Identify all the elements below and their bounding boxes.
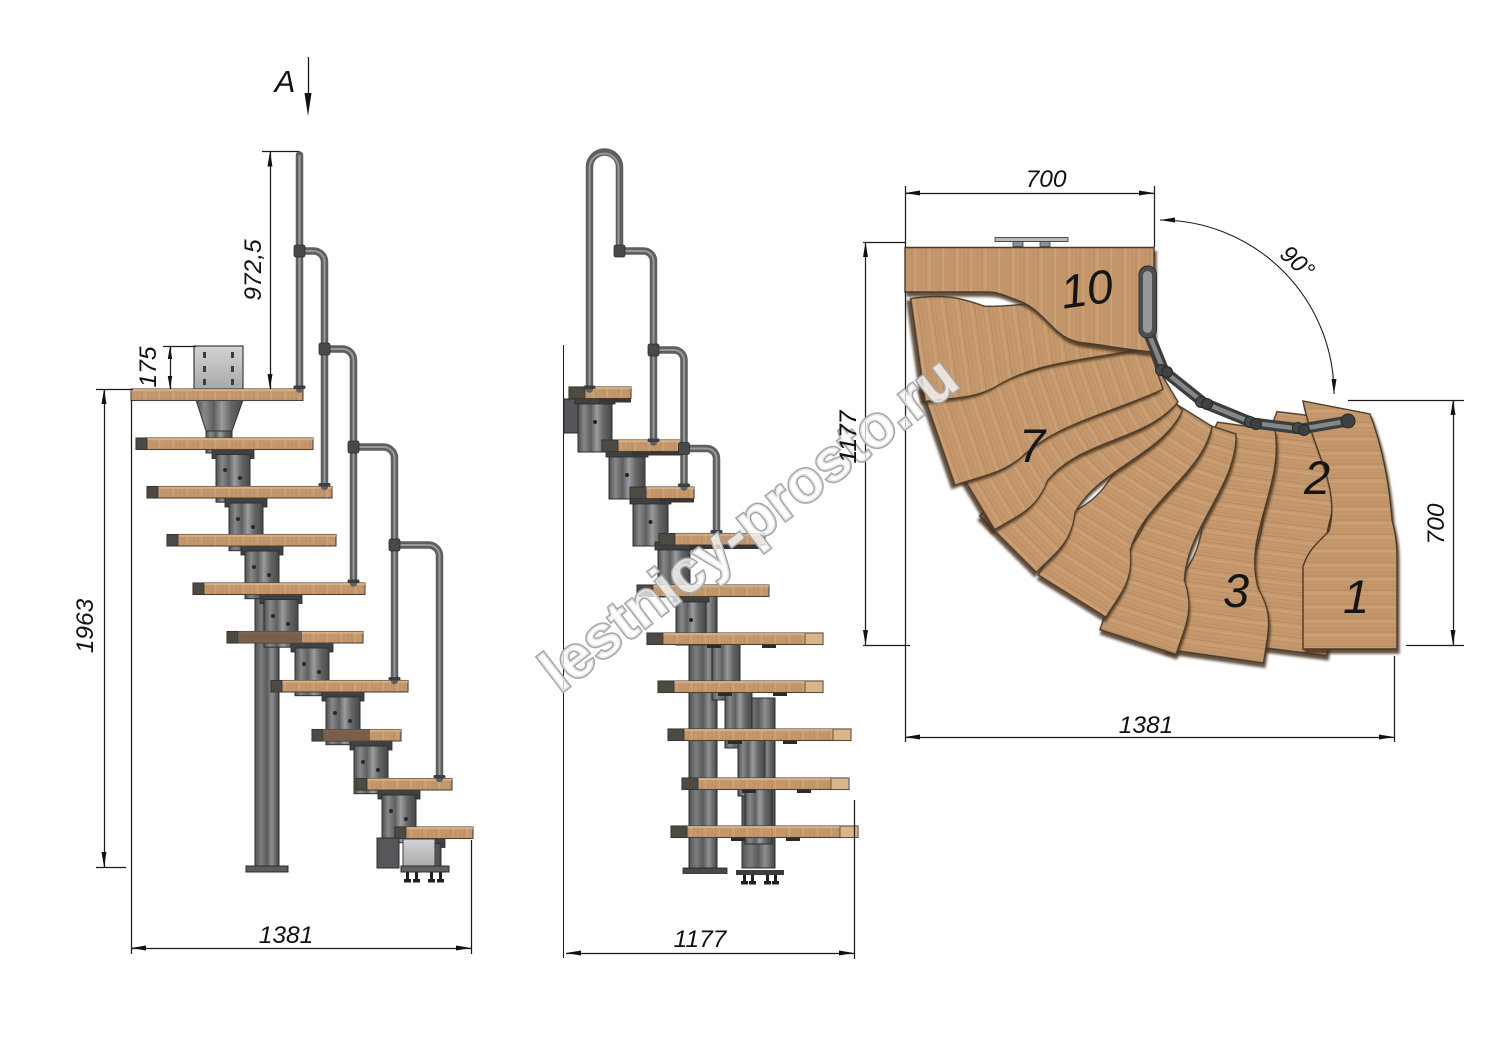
svg-text:972,5: 972,5	[240, 239, 267, 301]
svg-text:1177: 1177	[674, 926, 728, 953]
svg-text:1963: 1963	[72, 598, 99, 653]
svg-text:700: 700	[1423, 503, 1450, 544]
svg-text:10: 10	[1057, 259, 1116, 319]
svg-text:7: 7	[1019, 419, 1047, 472]
svg-text:3: 3	[1223, 564, 1249, 617]
svg-text:700: 700	[1026, 166, 1067, 193]
svg-text:1381: 1381	[259, 922, 314, 949]
svg-text:1381: 1381	[1119, 712, 1174, 739]
svg-text:175: 175	[135, 346, 162, 387]
svg-text:1: 1	[1343, 570, 1369, 623]
svg-text:1177: 1177	[835, 409, 862, 463]
svg-text:2: 2	[1303, 451, 1330, 504]
svg-text:A: A	[273, 64, 296, 99]
